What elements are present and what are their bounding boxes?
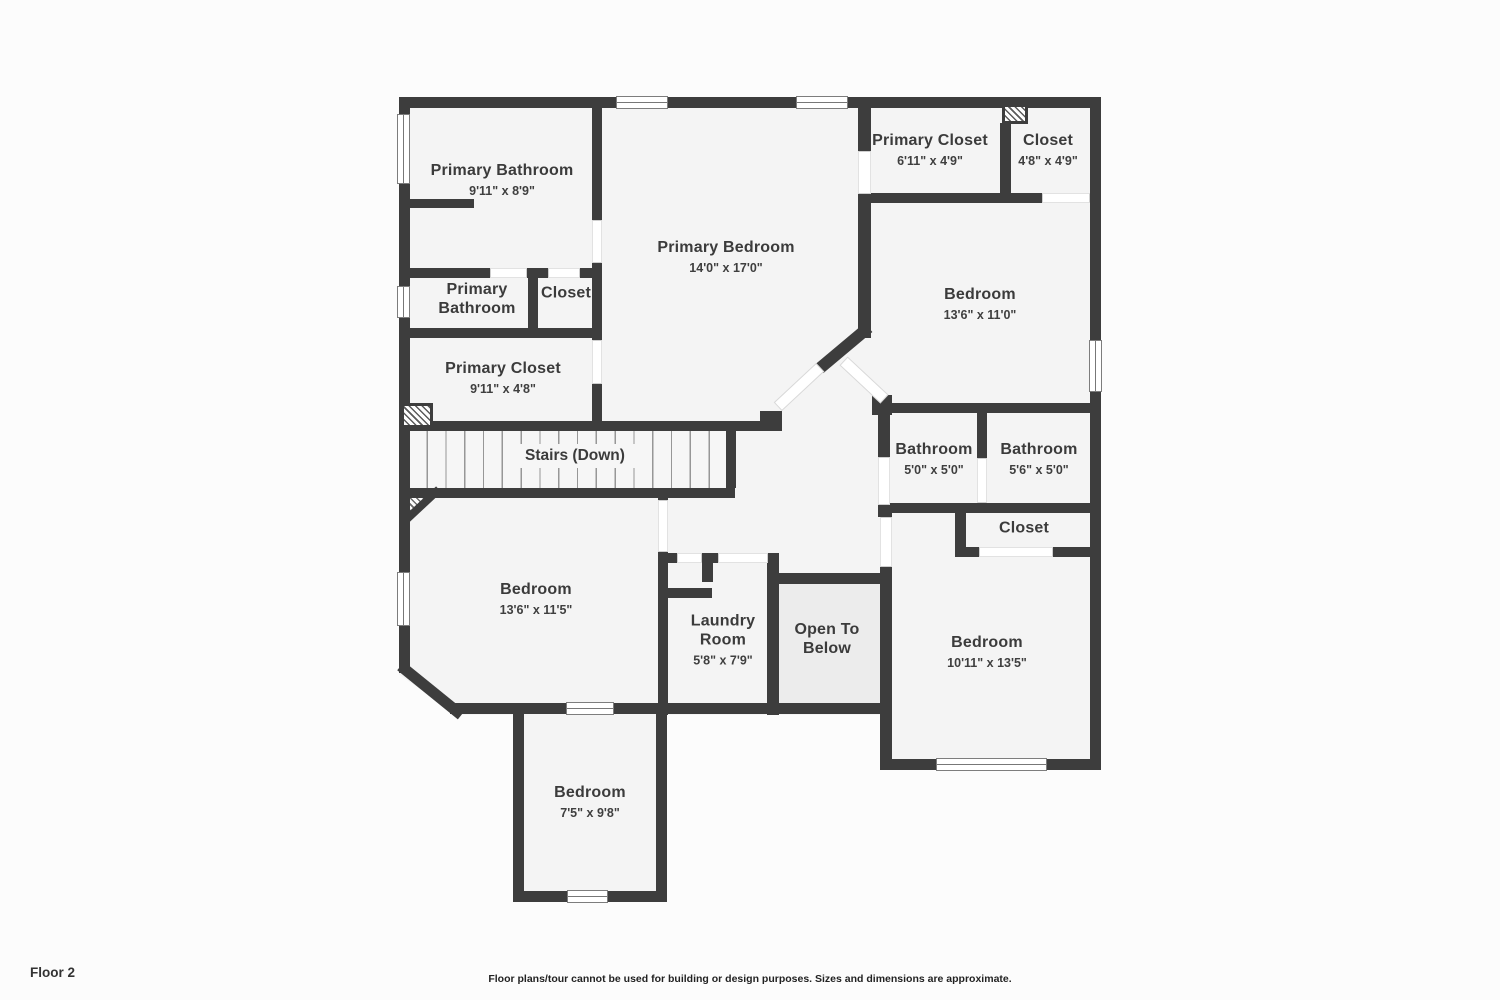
wall xyxy=(773,573,885,584)
room-name: Bathroom xyxy=(1000,441,1077,460)
room-dims: 7'5" x 9'8" xyxy=(554,806,626,820)
wall xyxy=(767,553,779,715)
window xyxy=(397,286,410,318)
hatch-marker xyxy=(401,403,433,428)
room-label-primary-bathroom-1: Primary Bathroom 9'11" x 8'9" xyxy=(431,162,574,198)
room-label-bathroom-2: Bathroom 5'6" x 5'0" xyxy=(1000,441,1077,477)
room-label-bedroom-3: Bedroom 10'11" x 13'5" xyxy=(947,634,1027,670)
room-name: Bedroom xyxy=(500,581,573,600)
room-name: Primary Closet xyxy=(445,360,561,379)
wall xyxy=(399,421,779,431)
room-label-primary-bedroom: Primary Bedroom 14'0" x 17'0" xyxy=(657,239,794,275)
room-label-bedroom-1: Bedroom 13'6" x 11'0" xyxy=(944,286,1017,322)
room-name: Primary Bathroom xyxy=(420,281,535,319)
door-opening xyxy=(1042,193,1090,203)
disclaimer-text: Floor plans/tour cannot be used for buil… xyxy=(488,973,1011,985)
room-label-closet-1: Closet 4'8" x 4'9" xyxy=(1018,132,1078,168)
floor-plan: Primary Bathroom 9'11" x 8'9" Primary Be… xyxy=(0,0,1500,1000)
wall xyxy=(408,328,602,338)
room-dims: 5'0" x 5'0" xyxy=(895,463,972,477)
wall xyxy=(513,703,524,902)
room-label-bathroom-1: Bathroom 5'0" x 5'0" xyxy=(895,441,972,477)
room-name: Closet xyxy=(1018,132,1078,151)
room-name: Bedroom xyxy=(947,634,1027,653)
wall xyxy=(1053,547,1090,557)
wall xyxy=(408,199,474,208)
door-opening xyxy=(979,547,1053,557)
door-opening xyxy=(677,553,702,563)
room-name: Laundry Room xyxy=(681,613,765,651)
wall xyxy=(658,553,677,563)
room-dims: 10'11" x 13'5" xyxy=(947,656,1027,670)
room-name: Primary Bathroom xyxy=(431,162,574,181)
wall xyxy=(858,193,1042,203)
window xyxy=(566,702,614,715)
wall xyxy=(1090,97,1101,770)
room-label-primary-closet-2: Primary Closet 9'11" x 4'8" xyxy=(445,360,561,396)
room-name: Open To Below xyxy=(781,621,873,659)
stairs-label: Stairs (Down) xyxy=(515,444,635,468)
wall xyxy=(656,703,667,902)
window xyxy=(567,890,608,903)
wall xyxy=(662,588,712,598)
wall xyxy=(726,431,736,488)
window xyxy=(397,114,410,184)
room-name: Primary Closet xyxy=(872,132,988,151)
wall xyxy=(955,547,979,557)
door-opening xyxy=(592,220,602,263)
door-opening xyxy=(592,340,602,384)
wall xyxy=(399,97,1101,108)
window xyxy=(936,758,1047,771)
floor-label: Floor 2 xyxy=(30,965,75,980)
room-label-closet-2: Closet xyxy=(541,285,591,304)
room-label-laundry-room: Laundry Room 5'8" x 7'9" xyxy=(681,613,765,668)
room-label-primary-closet-1: Primary Closet 6'11" x 4'9" xyxy=(872,132,988,168)
room-dims: 9'11" x 4'8" xyxy=(445,382,561,396)
wall xyxy=(408,268,490,278)
door-opening xyxy=(490,268,527,278)
window xyxy=(616,96,668,109)
hatch-marker xyxy=(1002,104,1028,124)
room-dims: 6'11" x 4'9" xyxy=(872,154,988,168)
room-label-closet-3: Closet xyxy=(999,520,1049,539)
wall xyxy=(858,97,871,338)
room-label-bedroom-2: Bedroom 13'6" x 11'5" xyxy=(500,581,573,617)
room-label-bedroom-4: Bedroom 7'5" x 9'8" xyxy=(554,784,626,820)
door-opening xyxy=(878,457,890,505)
window xyxy=(397,572,410,626)
room-name: Primary Bedroom xyxy=(657,239,794,258)
room-label-open-to-below: Open To Below xyxy=(781,621,873,659)
room-dims: 4'8" x 4'9" xyxy=(1018,154,1078,168)
room-dims: 9'11" x 8'9" xyxy=(431,184,574,198)
room-name: Bedroom xyxy=(944,286,1017,305)
wall xyxy=(702,553,713,582)
door-opening xyxy=(880,517,892,567)
door-opening xyxy=(658,500,668,552)
door-opening xyxy=(718,553,768,563)
room-dims: 5'6" x 5'0" xyxy=(1000,463,1077,477)
door-opening xyxy=(977,458,987,503)
wall xyxy=(888,403,1090,413)
room-name: Closet xyxy=(541,285,591,304)
room-name: Closet xyxy=(999,520,1049,539)
wall xyxy=(1000,123,1011,193)
room-name: Bathroom xyxy=(895,441,972,460)
room-dims: 13'6" x 11'0" xyxy=(944,308,1017,322)
window xyxy=(796,96,848,109)
window xyxy=(1089,340,1102,392)
room-dims: 14'0" x 17'0" xyxy=(657,261,794,275)
door-opening xyxy=(548,268,580,278)
wall xyxy=(878,503,1090,513)
wall xyxy=(399,488,735,498)
door-opening xyxy=(858,151,871,194)
room-dims: 5'8" x 7'9" xyxy=(681,653,765,667)
room-dims: 13'6" x 11'5" xyxy=(500,603,573,617)
wall xyxy=(760,411,782,431)
room-name: Bedroom xyxy=(554,784,626,803)
room-label-primary-bathroom-2: Primary Bathroom xyxy=(420,281,535,319)
